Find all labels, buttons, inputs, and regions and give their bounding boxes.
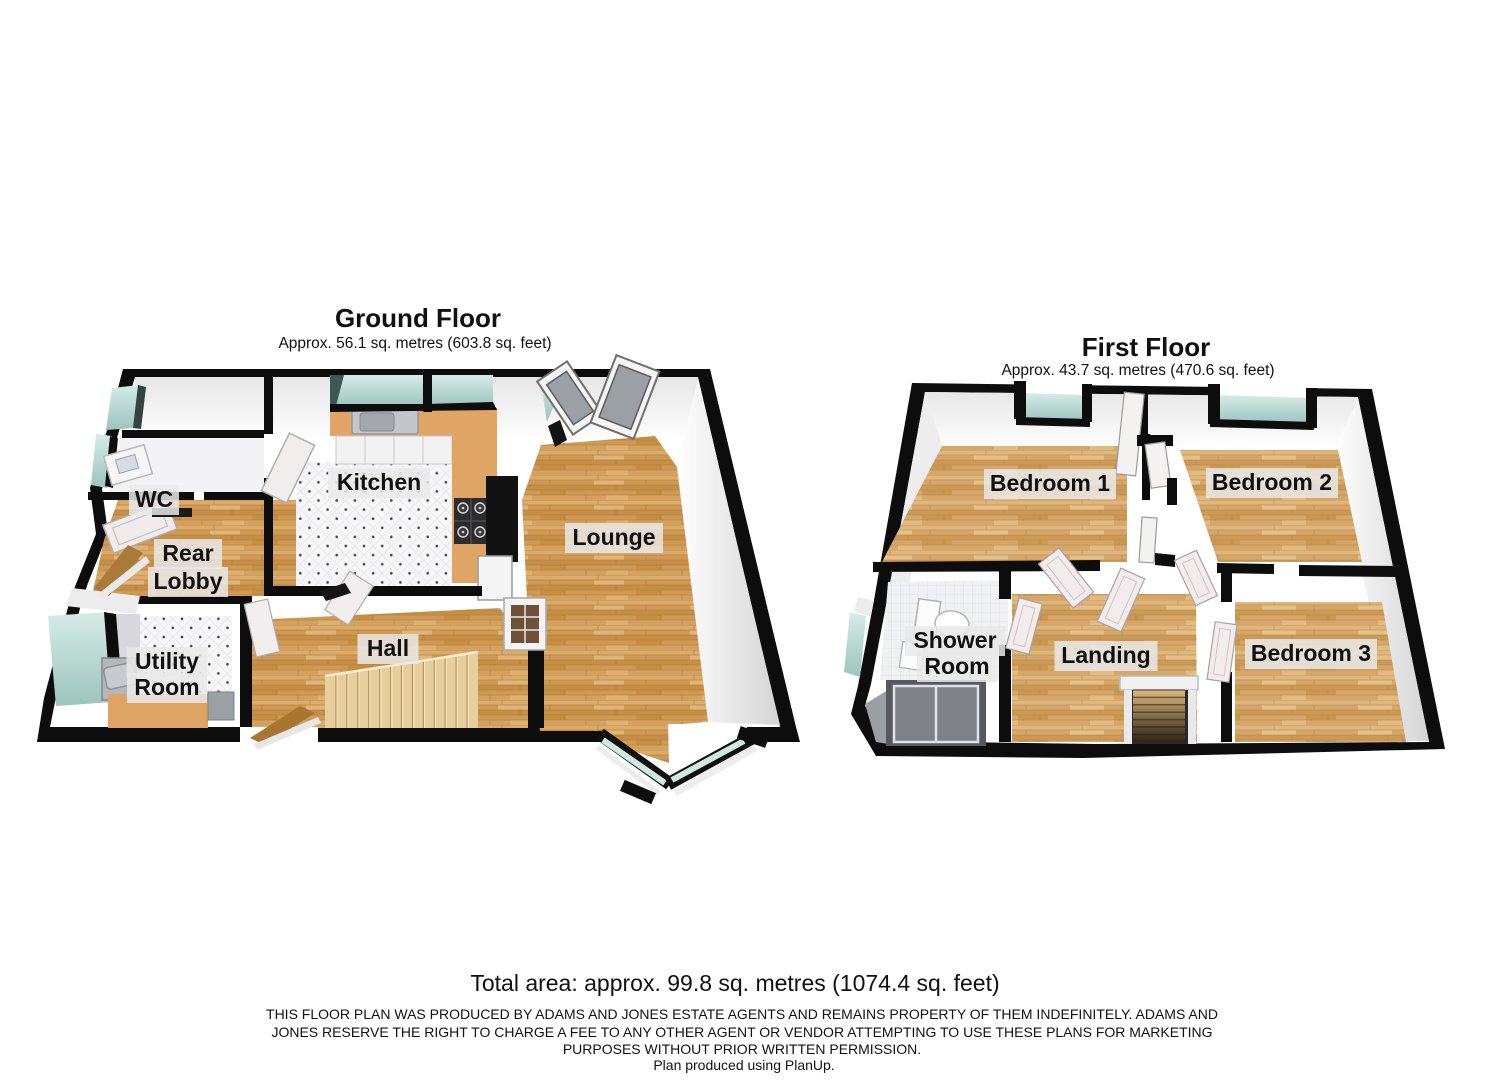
- svg-text:Room: Room: [924, 653, 989, 679]
- svg-text:THIS FLOOR PLAN WAS PRODUCED B: THIS FLOOR PLAN WAS PRODUCED BY ADAMS AN…: [266, 1006, 1218, 1022]
- svg-text:Kitchen: Kitchen: [337, 469, 421, 495]
- svg-text:WC: WC: [135, 486, 173, 512]
- svg-text:Hall: Hall: [367, 635, 409, 661]
- svg-text:Total area: approx. 99.8 sq. m: Total area: approx. 99.8 sq. metres (107…: [470, 970, 999, 996]
- svg-text:First Floor: First Floor: [1082, 332, 1211, 362]
- svg-text:Bedroom 2: Bedroom 2: [1212, 469, 1332, 495]
- svg-text:Approx. 56.1 sq. metres (603.8: Approx. 56.1 sq. metres (603.8 sq. feet): [278, 335, 551, 352]
- svg-text:Approx. 43.7 sq. metres (470.6: Approx. 43.7 sq. metres (470.6 sq. feet): [1001, 362, 1274, 379]
- svg-text:Lobby: Lobby: [154, 568, 223, 594]
- svg-text:Bedroom 3: Bedroom 3: [1251, 640, 1371, 666]
- svg-text:Landing: Landing: [1061, 642, 1150, 668]
- svg-text:Bedroom 1: Bedroom 1: [990, 470, 1110, 496]
- svg-text:Lounge: Lounge: [572, 524, 655, 550]
- svg-text:Shower: Shower: [913, 627, 996, 653]
- svg-text:JONES RESERVE THE RIGHT TO CHA: JONES RESERVE THE RIGHT TO CHARGE A FEE …: [271, 1024, 1212, 1040]
- svg-text:Ground Floor: Ground Floor: [335, 303, 501, 333]
- svg-text:Plan produced using PlanUp.: Plan produced using PlanUp.: [653, 1057, 834, 1073]
- svg-text:PURPOSES WITHOUT PRIOR WRITTEN: PURPOSES WITHOUT PRIOR WRITTEN PERMISSIO…: [563, 1041, 921, 1057]
- svg-text:Utility: Utility: [135, 648, 199, 674]
- svg-text:Rear: Rear: [162, 540, 213, 566]
- svg-text:Room: Room: [134, 674, 199, 700]
